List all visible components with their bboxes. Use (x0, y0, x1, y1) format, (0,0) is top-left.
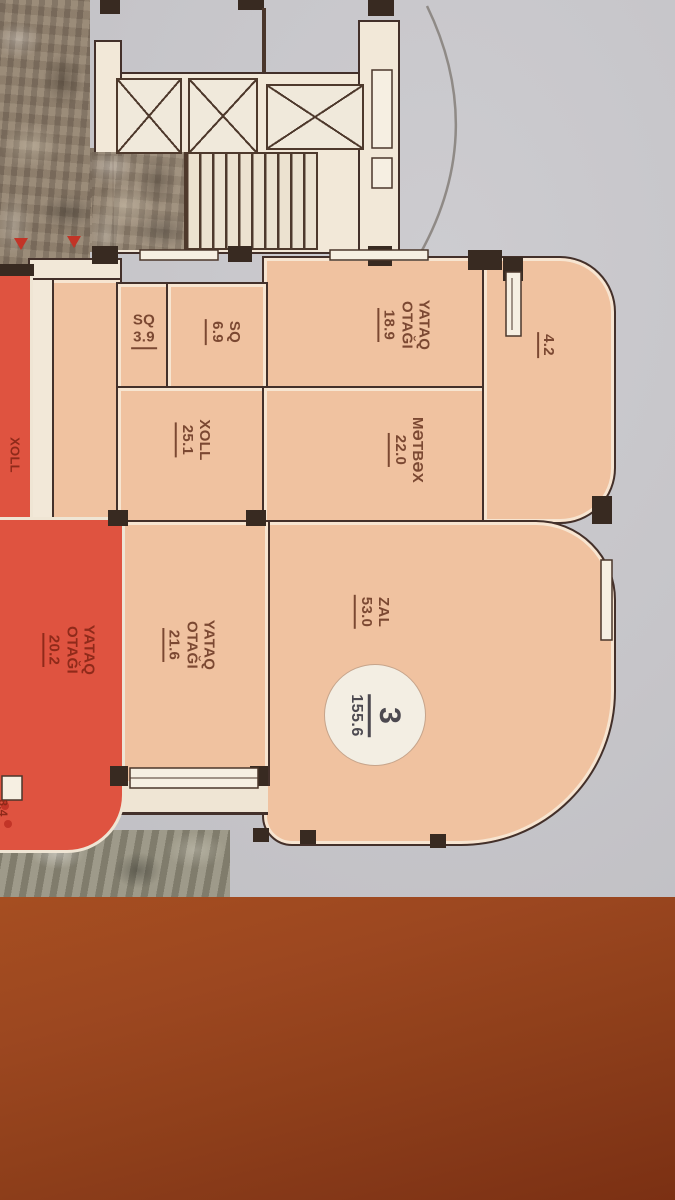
label-zal: ZAL 53.0 (354, 595, 392, 629)
corridor-right-wall (358, 20, 400, 252)
unit-badge-fraction: 3 155.6 (346, 694, 403, 737)
staircase (184, 152, 318, 250)
photo-of-floor-plan: YATAQ OTAĞI 18.9 SQ 6.9 SQ 3.9 XOLL 25.1… (0, 0, 675, 1200)
unit-badge: 3 155.6 (325, 665, 425, 765)
adjacent-unit-block (0, 520, 122, 850)
label-sq-small: SQ 3.9 (131, 311, 157, 349)
label-edge-area: 8.4 (0, 799, 9, 817)
room-metbex (262, 386, 488, 526)
city-photo-showthrough (92, 152, 185, 250)
adjacent-unit-strip (0, 270, 30, 530)
elevator-shaft-2 (188, 78, 258, 154)
elevator-shaft-3 (266, 84, 364, 150)
elevator-shaft-1 (116, 78, 182, 154)
label-adjacent-hall: XOLL (7, 437, 22, 473)
label-adjacent-bedroom: YATAQ OTAĞI 20.2 (43, 619, 98, 681)
label-bedroom-top: YATAQ OTAĞI 18.9 (378, 294, 433, 356)
room-unlabeled-left (46, 278, 122, 528)
label-xoll: XOLL 25.1 (175, 419, 213, 460)
label-sq-large: SQ 6.9 (205, 319, 243, 345)
party-wall-band (28, 278, 54, 530)
label-metbex: MƏTBƏX 22.0 (388, 417, 426, 483)
bay-balcony-top (482, 256, 616, 524)
label-balcony-area: 4.2 (537, 332, 557, 358)
room-bedroom-top (262, 256, 488, 392)
bottom-wall-band (118, 782, 268, 815)
city-photo-strip (0, 0, 90, 265)
wood-table-surface (0, 897, 675, 1200)
label-bedroom-mid: YATAQ OTAĞI 21.6 (163, 614, 218, 676)
room-zal-bay (262, 520, 616, 846)
